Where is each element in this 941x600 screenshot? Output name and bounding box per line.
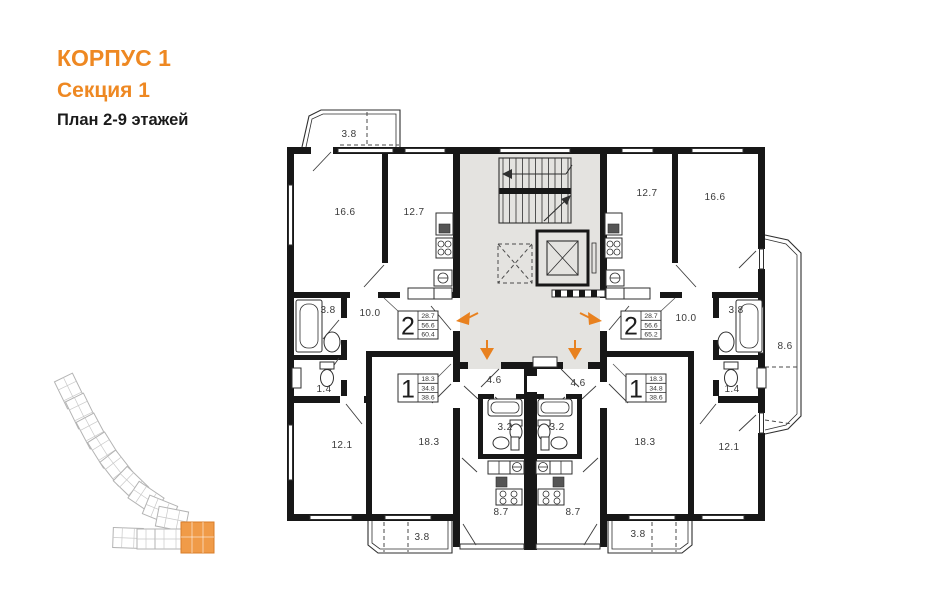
apartment-type: 2: [624, 313, 638, 341]
room-area-label: 10.0: [675, 313, 696, 324]
balcony-bottom-left: [368, 521, 452, 553]
room-area-label: 3.2: [549, 422, 564, 433]
total-area: 60.4: [421, 332, 434, 339]
floor-plan-page: КОРПУС 1 Секция 1 План 2-9 этажей: [0, 0, 941, 600]
room-area-label: 8.7: [565, 507, 580, 518]
mini-map: [54, 373, 214, 553]
room-area-label: 12.7: [636, 188, 657, 199]
apartment-area: 34.8: [649, 385, 662, 392]
balcony-side-right: [765, 235, 801, 434]
room-area-label: 3.8: [320, 305, 335, 316]
apartment-area: 34.8: [421, 385, 434, 392]
bathroom-sink: [718, 332, 734, 352]
apartment-type: 1: [629, 376, 643, 404]
room-area-label: 4.6: [570, 378, 585, 389]
room-area-label: 3.2: [497, 422, 512, 433]
room-area-label: 8.6: [777, 341, 792, 352]
room-area-label: 8.7: [493, 507, 508, 518]
apartment-badge-1-right: 1 18.3 34.8 38.6: [613, 364, 666, 404]
room-area-label: 4.6: [486, 375, 501, 386]
stair-core-floor: [460, 154, 600, 369]
room-area-label: 3.8: [341, 129, 356, 140]
apartment-badge-2-right: 2 28.7 56.6 65.2: [621, 298, 675, 341]
apartment-area: 56.6: [644, 322, 657, 329]
living-area: 28.7: [421, 313, 434, 320]
room-area-label: 18.3: [634, 437, 655, 448]
room-area-label: 18.3: [418, 437, 439, 448]
room-area-label: 16.6: [704, 192, 725, 203]
mini-map-highlighted-section: [181, 522, 214, 553]
room-area-label: 3.8: [728, 305, 743, 316]
living-area: 28.7: [644, 313, 657, 320]
room-area-label: 12.1: [331, 440, 352, 451]
living-area: 18.3: [649, 376, 662, 383]
bathroom-sink: [324, 332, 340, 352]
apartment-badge-1-left: 1 18.3 34.8 38.6: [398, 364, 451, 404]
room-area-label: 12.1: [718, 442, 739, 453]
total-area: 38.6: [421, 395, 434, 402]
room-area-label: 3.8: [630, 529, 645, 540]
room-area-label: 1.4: [316, 384, 331, 395]
elevator-door-hatch: [552, 290, 605, 297]
living-area: 18.3: [421, 376, 434, 383]
kitchen-appliances-right: [605, 213, 650, 299]
room-area-label: 12.7: [403, 207, 424, 218]
entrance-vestibule-door: [533, 357, 557, 367]
bathtub: [296, 300, 322, 352]
apartment-area: 56.6: [421, 322, 434, 329]
room-area-label: 16.6: [334, 207, 355, 218]
total-area: 65.2: [644, 332, 657, 339]
small-kitchen-fixtures-right: [536, 461, 572, 505]
small-kitchen-fixtures-left: [488, 461, 524, 505]
apartment-type: 2: [401, 313, 415, 341]
apartment-type: 1: [401, 376, 415, 404]
balcony-bottom-right: [608, 521, 692, 553]
apartment-badge-2-left: 2 28.7 56.6 60.4: [384, 298, 438, 341]
total-area: 38.6: [649, 395, 662, 402]
floor-plan: 2 28.7 56.6 60.4 2 28.7 56.6 65.2 1 18.3…: [0, 0, 941, 600]
kitchen-appliances-left: [408, 213, 453, 299]
room-area-label: 3.8: [414, 532, 429, 543]
room-area-label: 10.0: [359, 308, 380, 319]
room-area-label: 1.4: [724, 384, 739, 395]
